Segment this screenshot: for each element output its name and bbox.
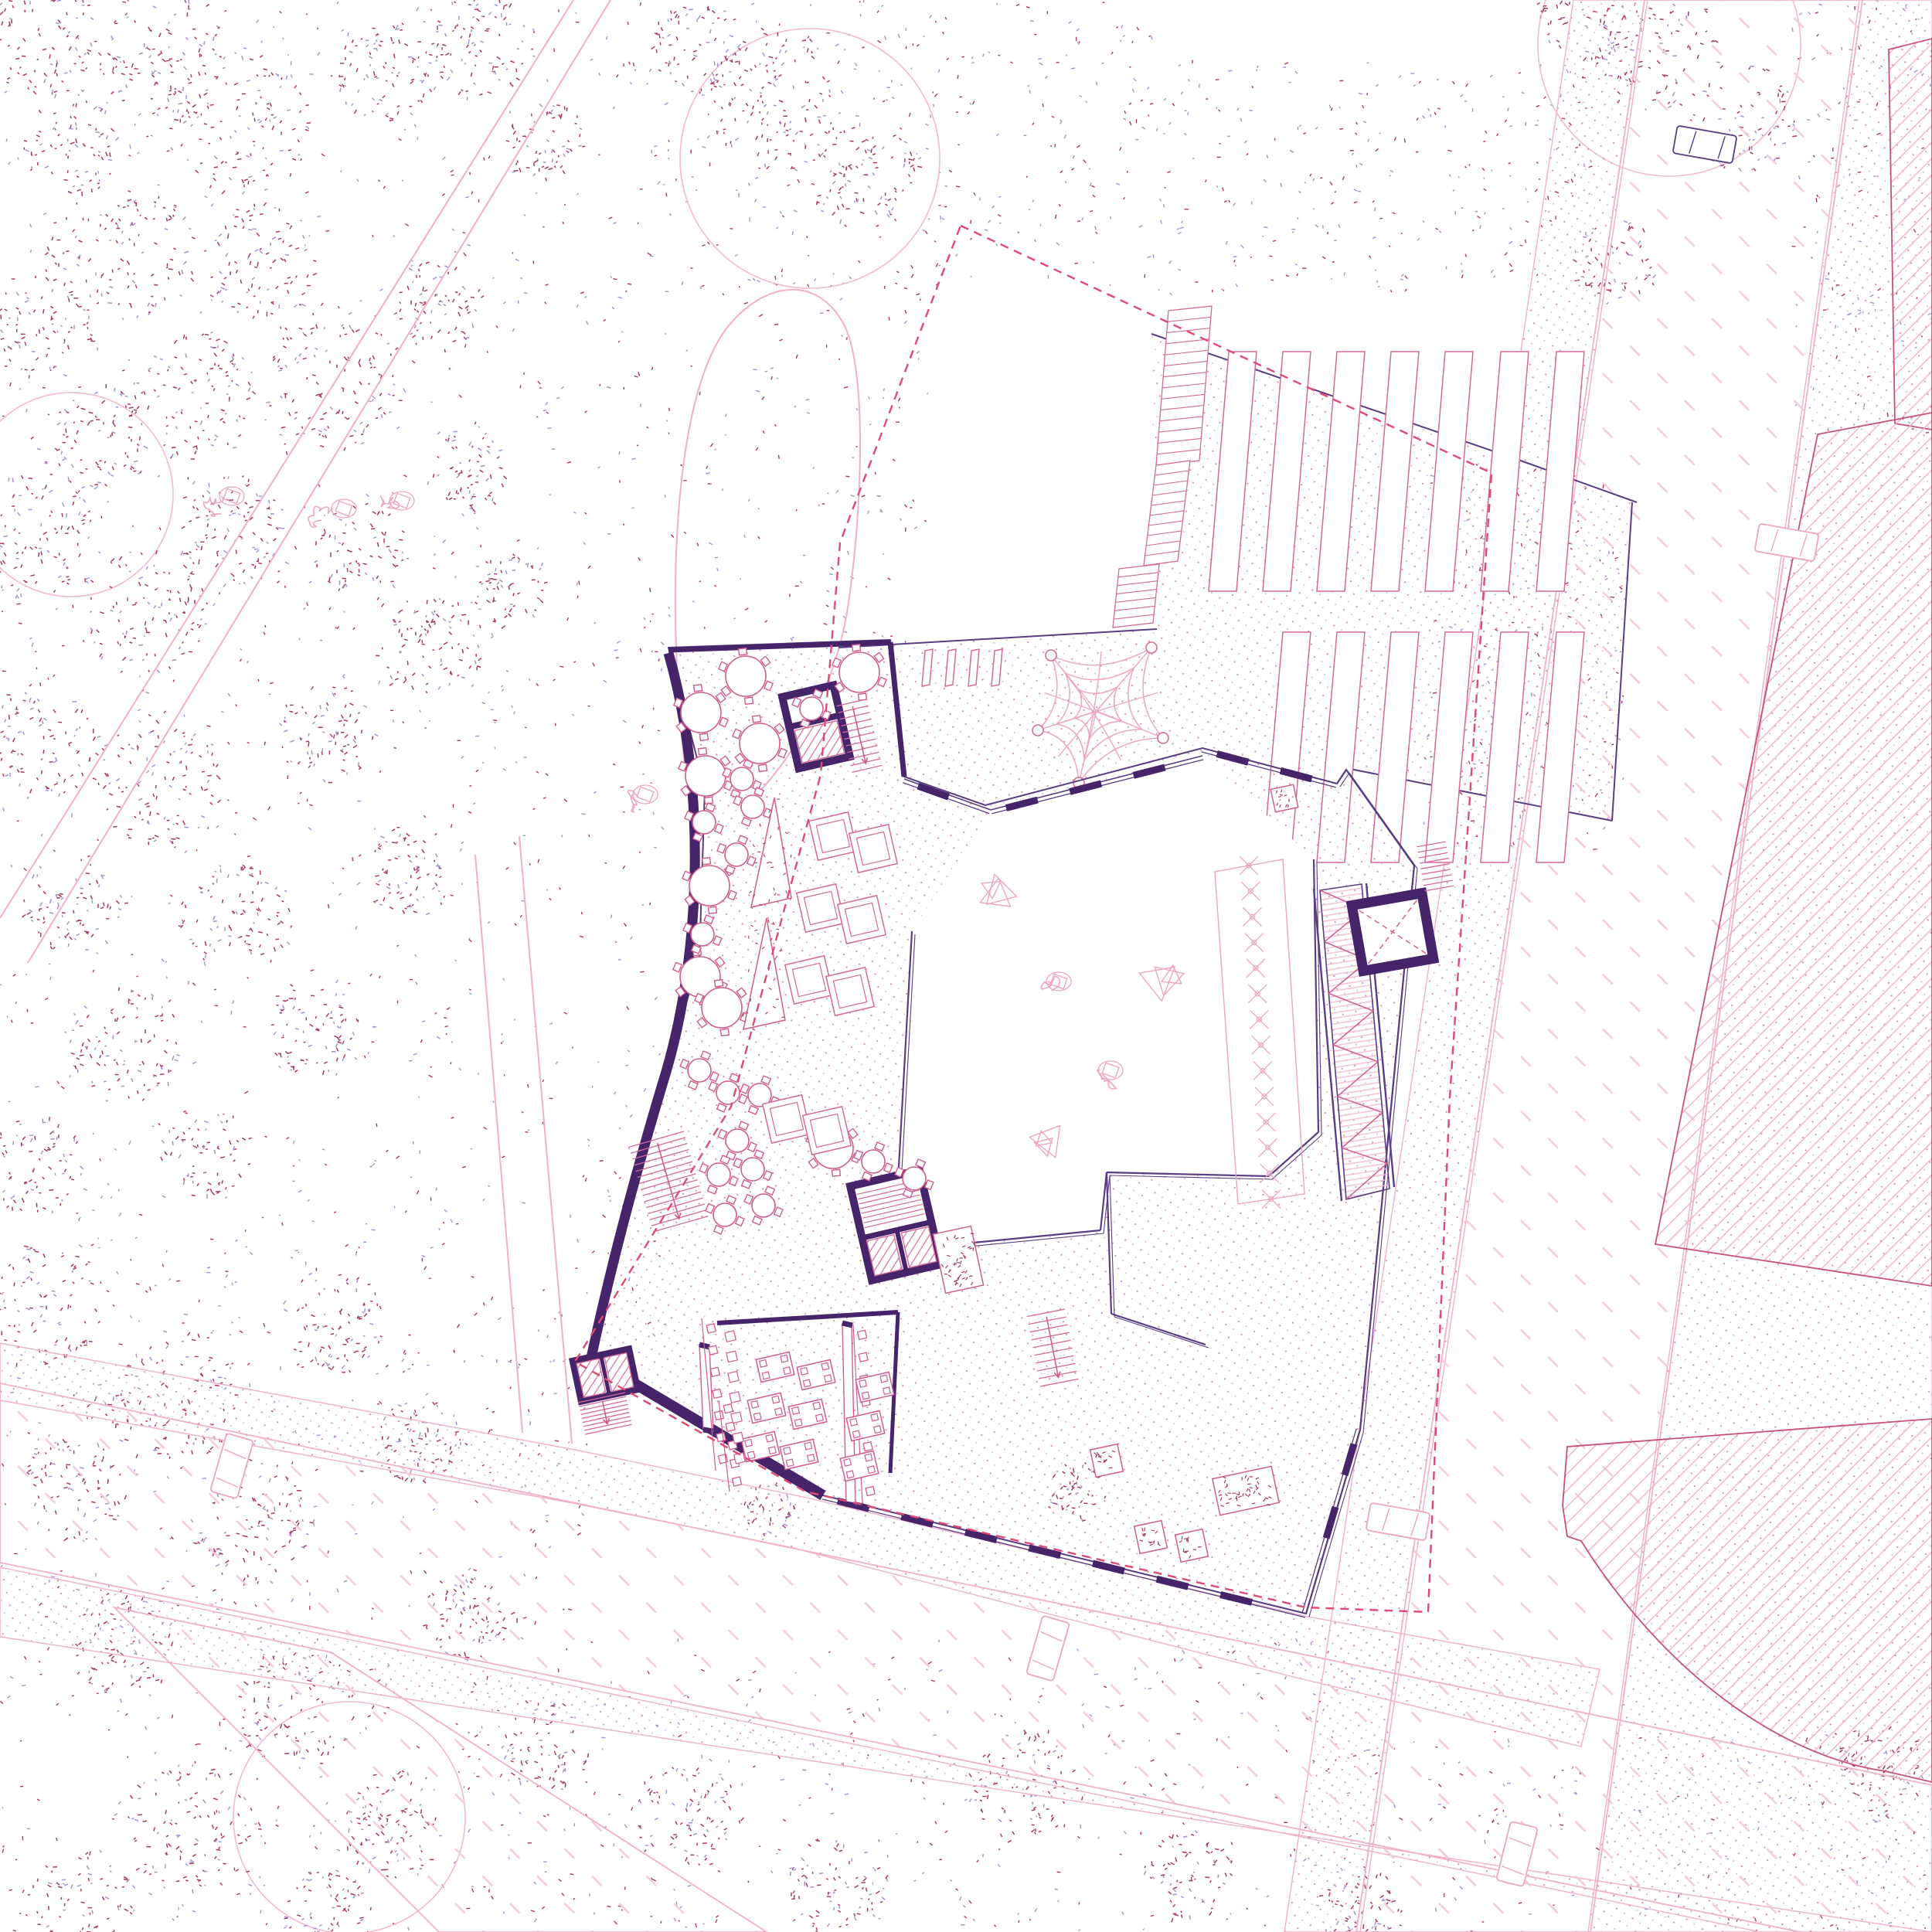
tree-cluster — [376, 599, 481, 693]
tree-cluster — [181, 865, 292, 962]
locker — [728, 1372, 739, 1383]
tree-cluster — [651, 6, 747, 96]
planter-box — [1134, 1521, 1168, 1554]
bush-scribble — [628, 785, 658, 812]
tree-cluster — [86, 550, 208, 672]
tree-cluster — [506, 102, 585, 181]
tree-cluster — [269, 312, 398, 447]
tree-cluster — [128, 1761, 262, 1893]
tree-cluster — [339, 25, 433, 121]
tree-cluster — [121, 332, 256, 459]
tree-cluster — [1144, 1831, 1232, 1922]
tree-cluster — [790, 1839, 888, 1931]
tree-cluster — [400, 262, 484, 352]
tree-cluster — [638, 1767, 744, 1866]
elevator-box — [1352, 893, 1434, 971]
tree-cluster — [28, 1850, 132, 1932]
skylight — [803, 1107, 851, 1155]
skylight — [838, 896, 886, 944]
skylight — [849, 825, 897, 872]
tree-cluster — [816, 128, 922, 226]
planter-box — [1175, 1529, 1209, 1563]
tree-cluster — [475, 554, 548, 628]
locker — [730, 1392, 740, 1403]
tree-cluster — [315, 503, 403, 588]
tree-cluster — [37, 384, 148, 494]
tree-cluster — [161, 1111, 252, 1199]
tree-cluster — [284, 1870, 372, 1932]
bush-scribble — [380, 492, 414, 510]
neighbor-building-ne — [1889, 39, 1932, 430]
tree-cluster — [431, 0, 535, 95]
skylight — [797, 884, 845, 932]
tree-cluster — [433, 431, 506, 512]
bush-scribble — [308, 499, 356, 527]
locker — [726, 1351, 737, 1362]
tree-cluster — [374, 829, 442, 915]
tree-cluster — [284, 1268, 383, 1373]
tree-cluster — [0, 1119, 83, 1213]
locker — [725, 1331, 736, 1342]
tree-cluster — [0, 276, 93, 388]
sw-core — [573, 1349, 637, 1401]
locker — [733, 1432, 743, 1443]
tree-cluster — [0, 0, 97, 98]
tree-cluster — [0, 474, 91, 593]
skylight — [826, 968, 874, 1015]
tree-cluster — [0, 692, 95, 799]
tree-cluster — [169, 53, 311, 194]
site-plan-page — [0, 0, 1932, 1932]
site-plan-canvas — [0, 0, 1932, 1932]
tree-cluster — [271, 985, 357, 1075]
tree-cluster — [24, 100, 119, 196]
tree-cluster — [70, 988, 180, 1099]
skylight — [785, 956, 833, 1004]
tree-cluster — [280, 687, 378, 783]
locker — [731, 1412, 742, 1423]
tree-cluster — [45, 183, 195, 320]
tree-cluster — [711, 32, 843, 160]
tree-cluster — [22, 856, 121, 951]
tree-cluster — [100, 0, 226, 117]
